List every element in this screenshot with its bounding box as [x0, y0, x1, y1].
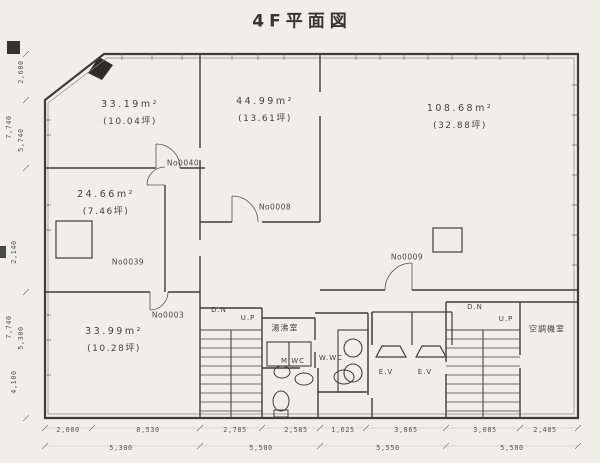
dim-left-1: 2,600: [17, 60, 25, 83]
dim-bottom-6: 3,865: [394, 426, 417, 434]
staircase-left: [200, 330, 262, 418]
room-area: 33.99m²: [85, 326, 143, 337]
dim-bottom-4: 2,585: [284, 426, 307, 434]
floor-plan-drawing: [0, 0, 600, 463]
stair-left-down-label: D.N: [211, 306, 227, 314]
dim-left-2: 7,740: [5, 115, 13, 138]
dim-left-3: 5,740: [17, 128, 25, 151]
dim-left-7: 4,100: [10, 370, 18, 393]
room-area: 24.66m²: [77, 189, 135, 200]
dim-left-4: 2,140: [10, 240, 18, 263]
dim-bottom-7: 3,085: [473, 426, 496, 434]
room-tsubo: (10.04坪): [101, 114, 159, 127]
room-tsubo: (32.88坪): [427, 118, 493, 131]
dim-bottom-sum-1: 5,300: [109, 444, 132, 452]
dim-bottom-sum-2: 5,500: [249, 444, 272, 452]
elevator-symbols: [372, 312, 452, 357]
room-number-no0040: No0040: [167, 159, 199, 168]
room-number-no0008: No0008: [259, 203, 291, 212]
room-label-44-99: 44.99m² (13.61坪): [236, 96, 294, 124]
kitchenette-label: 湯沸室: [272, 323, 299, 334]
room-label-33-99: 33.99m² (10.28坪): [85, 326, 143, 354]
room-area: 108.68m²: [427, 103, 493, 114]
ac-room-label: 空調機室: [529, 324, 565, 335]
stair-left-up-label: U.P: [241, 314, 256, 322]
room-area: 33.19m²: [101, 99, 159, 110]
room-tsubo: (13.61坪): [236, 111, 294, 124]
room-label-33-19: 33.19m² (10.04坪): [101, 99, 159, 127]
room-tsubo: (10.28坪): [85, 341, 143, 354]
room-label-24-66: 24.66m² (7.46坪): [77, 189, 135, 217]
elevator-2-label: E.V: [418, 368, 432, 376]
womens-wc-label: W.WC: [319, 354, 343, 362]
page-title: 4F平面図: [252, 7, 351, 32]
room-number-no0003: No0003: [152, 311, 184, 320]
dim-bottom-8: 2,485: [533, 426, 556, 434]
elevator-1-label: E.V: [379, 368, 393, 376]
staircase-right: [446, 330, 520, 418]
mens-wc-label: M.WC: [281, 357, 305, 365]
room-number-no0039: No0039: [112, 258, 144, 267]
dim-bottom-1: 2,000: [56, 426, 79, 434]
dim-bottom-3: 2,785: [223, 426, 246, 434]
floor-plan-page: 4F平面図 33.19m² (10.04坪) 44.99m² (13.61坪) …: [0, 0, 600, 463]
dim-bottom-sum-4: 5,500: [500, 444, 523, 452]
stair-right-up-label: U.P: [499, 315, 514, 323]
door-arcs: [147, 144, 412, 310]
dim-bottom-2: 8,530: [136, 426, 159, 434]
dim-bottom-5: 1,625: [331, 426, 354, 434]
stair-right-down-label: D.N: [467, 303, 483, 311]
dim-left-5: 7,740: [5, 315, 13, 338]
room-label-108-68: 108.68m² (32.88坪): [427, 103, 493, 131]
room-number-no0009: No0009: [391, 253, 423, 262]
room-tsubo: (7.46坪): [77, 204, 135, 217]
room-area: 44.99m²: [236, 96, 294, 107]
dim-bottom-sum-3: 5,550: [376, 444, 399, 452]
dim-left-6: 5,300: [17, 326, 25, 349]
